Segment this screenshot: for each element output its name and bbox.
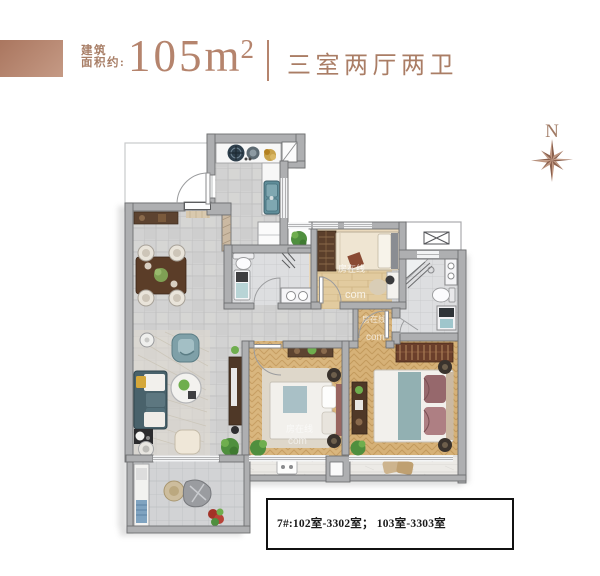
svg-text:com: com	[345, 289, 366, 301]
svg-text:房在线: 房在线	[338, 263, 365, 274]
svg-text:com: com	[288, 436, 307, 447]
svg-text:房在线: 房在线	[286, 423, 313, 434]
svg-text:com: com	[366, 332, 385, 343]
